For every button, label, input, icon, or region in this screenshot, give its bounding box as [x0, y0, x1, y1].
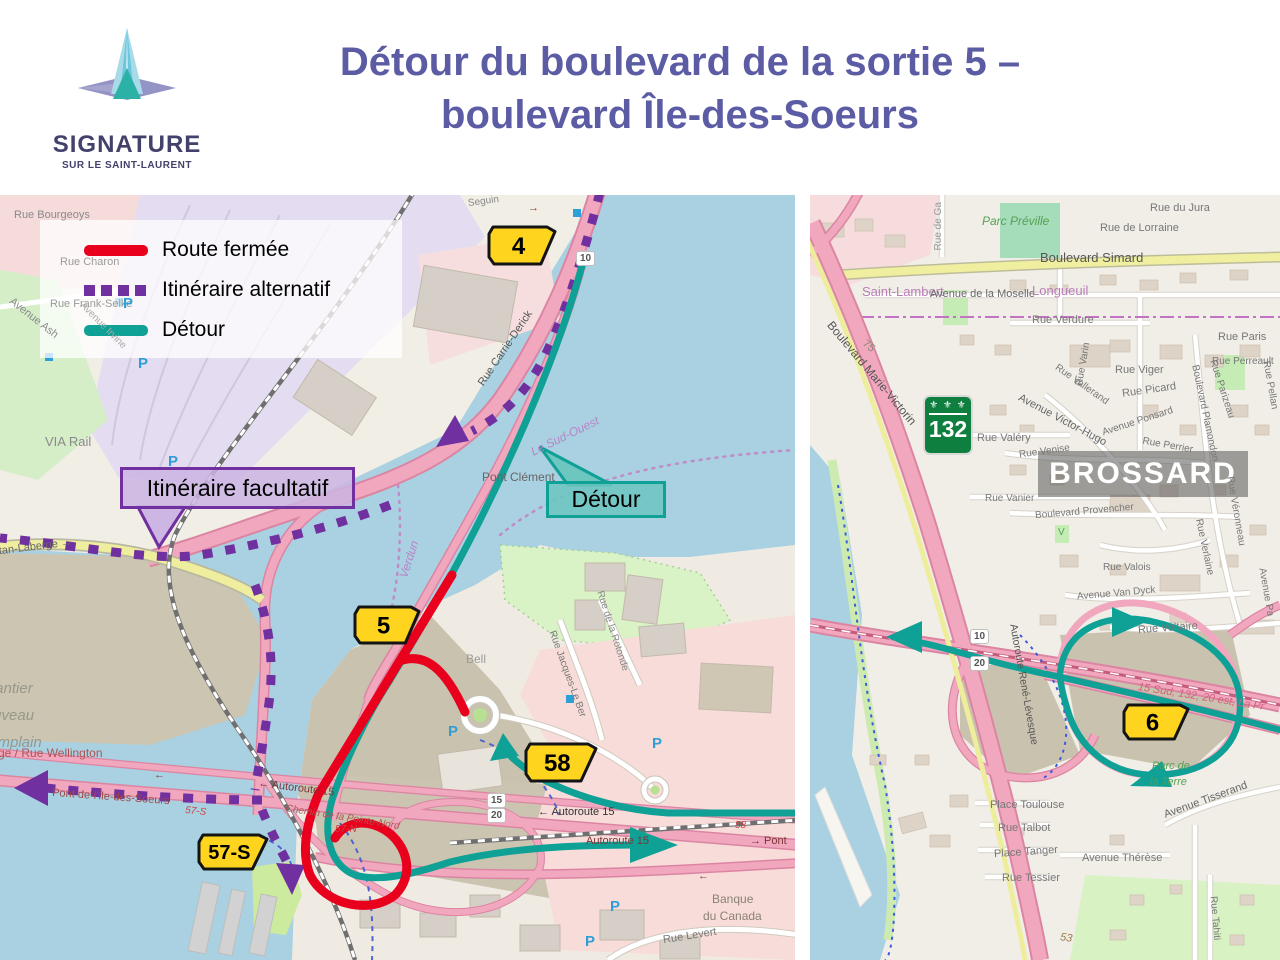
- route-132-number: 132: [925, 416, 971, 443]
- map-label: Nouveau: [0, 708, 34, 724]
- map-label: Rue de Ga: [934, 202, 945, 250]
- map-label: VIA Rail: [45, 435, 91, 449]
- parking-icon: P: [138, 355, 148, 372]
- map-label: Longueuil: [1032, 284, 1088, 298]
- map-label: Rue Vanier: [985, 494, 1034, 505]
- signature-logo-icon: [72, 26, 182, 124]
- map-label: Boulevard Simard: [1040, 251, 1143, 265]
- page-title: Détour du boulevard de la sortie 5 – bou…: [240, 36, 1120, 142]
- map-label: Rue Valéry: [977, 433, 1031, 445]
- map-label: → Pont: [750, 836, 787, 848]
- svg-text:4: 4: [512, 233, 526, 260]
- detour-callout: Détour: [546, 481, 666, 518]
- road-number-plate: 20: [487, 808, 506, 823]
- exit-badge-58: 58: [524, 742, 598, 783]
- road-number-plate: 10: [970, 629, 989, 644]
- map-label: Autoroute 15: [586, 836, 649, 848]
- page-title-line2: boulevard Île-des-Soeurs: [240, 89, 1120, 142]
- road-number-plate: 15: [487, 793, 506, 808]
- map-label: Rue Bourgeoys: [14, 210, 90, 222]
- map-label: V: [1058, 528, 1065, 539]
- map-label: Pont Clément: [482, 471, 555, 484]
- route-132-shield: ⚜ ⚜ ⚜ 132: [923, 395, 973, 455]
- signature-logo: SIGNATURE SUR LE SAINT-LAURENT: [52, 26, 202, 171]
- svg-text:57-S: 57-S: [208, 842, 250, 864]
- map-label: Rue de Lorraine: [1100, 223, 1179, 235]
- parking-icon: P: [652, 735, 662, 752]
- exit-badge-5: 5: [353, 605, 421, 645]
- map-label: Parc Préville: [982, 215, 1049, 228]
- map-label: Rue Tessier: [1002, 873, 1060, 885]
- map-label: ← Autoroute 15: [538, 807, 614, 819]
- map-label: Banque: [712, 893, 753, 906]
- parking-icon: P: [123, 295, 133, 312]
- road-number-plate: 20: [970, 656, 989, 671]
- exit-badge-6: 6: [1122, 703, 1190, 741]
- parking-icon: P: [585, 933, 595, 950]
- alternative-route-callout: Itinéraire facultatif: [120, 467, 355, 509]
- parking-icon: P: [448, 723, 458, 740]
- svg-text:58: 58: [544, 750, 571, 777]
- map-label: Rue Verdure: [1032, 315, 1094, 327]
- slide: SIGNATURE SUR LE SAINT-LAURENT Détour du…: [0, 0, 1280, 960]
- map-label: Rue Charon: [60, 257, 119, 269]
- svg-text:6: 6: [1146, 710, 1159, 737]
- exit-badge-57-S: 57-S: [197, 833, 269, 871]
- map-label: Rue Talbot: [998, 823, 1050, 835]
- right-map: BROSSARD ⚜ ⚜ ⚜ 132 Rue de GaParc Prévill…: [810, 195, 1280, 960]
- fleur-de-lis-icons: ⚜ ⚜ ⚜: [925, 400, 971, 411]
- logo-name: SIGNATURE: [52, 131, 202, 159]
- parking-icon: P: [168, 453, 178, 470]
- map-label: Avenue Thérèse: [1082, 853, 1162, 865]
- map-label: ←: [154, 770, 165, 782]
- alternative-route-swatch: [84, 285, 148, 296]
- map-label: 57-S: [185, 806, 207, 819]
- exit-badge-4: 4: [487, 225, 557, 266]
- map-label: Bell: [466, 653, 486, 666]
- map-label: ←: [698, 871, 709, 883]
- logo-subtitle: SUR LE SAINT-LAURENT: [52, 160, 202, 171]
- parking-icon: P: [610, 898, 620, 915]
- svg-text:5: 5: [377, 613, 390, 640]
- map-label: 57-N: [335, 825, 357, 836]
- map-label: Parc de: [1152, 761, 1190, 773]
- map-label: Chantier: [0, 681, 33, 697]
- map-label: du Canada: [703, 910, 762, 923]
- road-number-plate: 10: [576, 251, 595, 266]
- closed-route-swatch: [84, 245, 148, 256]
- map-label: Rue Paris: [1218, 332, 1266, 344]
- map-label: Rue Viger: [1115, 365, 1164, 377]
- map-label: Rue Valois: [1103, 563, 1151, 574]
- left-map: Route fermée Itinéraire alternatif Détou…: [0, 195, 795, 960]
- map-label: Avenue de la Moselle: [930, 289, 1035, 301]
- map-label: Rue du Jura: [1150, 203, 1210, 215]
- map-label: 58: [735, 821, 746, 832]
- map-label: ge / Rue Wellington: [0, 747, 103, 760]
- map-label: 53: [1059, 932, 1073, 945]
- map-label: la Terre: [1150, 777, 1187, 789]
- alternative-callout-tail: [133, 505, 191, 550]
- page-title-line1: Détour du boulevard de la sortie 5 –: [240, 36, 1120, 89]
- map-label: →: [528, 203, 539, 215]
- map-legend: Route fermée Itinéraire alternatif Détou…: [40, 220, 402, 358]
- map-label: Place Toulouse: [990, 800, 1064, 812]
